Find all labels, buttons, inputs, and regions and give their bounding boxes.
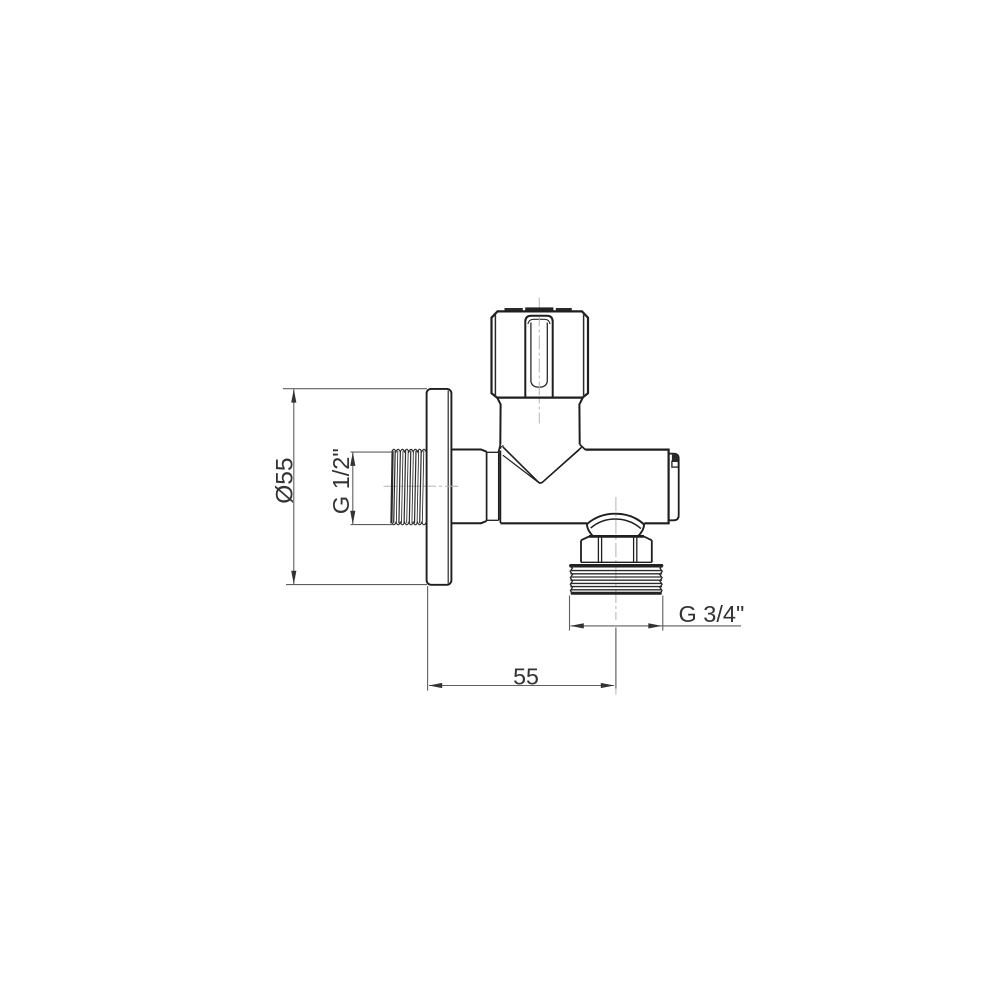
svg-text:55: 55 (513, 663, 539, 689)
svg-text:G 3/4": G 3/4" (679, 601, 745, 627)
svg-text:G 1/2": G 1/2" (328, 448, 354, 514)
svg-text:Ø55: Ø55 (272, 457, 299, 503)
